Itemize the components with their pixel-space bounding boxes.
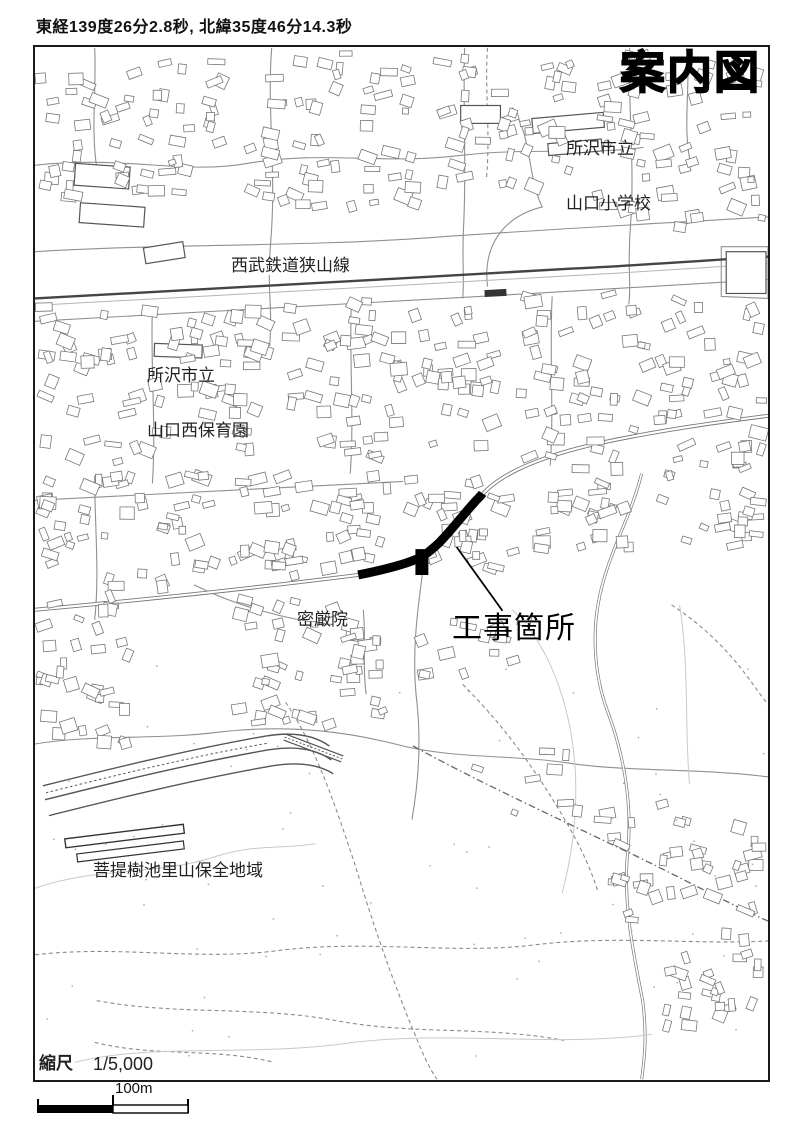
label-conservation-area: 菩提樹池里山保全地域 — [93, 862, 263, 880]
scale-value: 1/5,000 — [93, 1055, 153, 1074]
label-elementary-school-line1: 所沢市立 — [566, 140, 651, 158]
label-construction-site: 工事箇所 — [452, 613, 576, 645]
scale-bar — [33, 1079, 203, 1115]
coordinates-text: 東経139度26分2.8秒, 北緯35度46分14.3秒 — [36, 13, 352, 37]
label-temple: 密厳院 — [297, 611, 348, 629]
terrace-strips — [43, 734, 333, 862]
map-title: 案内図 — [620, 49, 761, 98]
label-elementary-school-line2: 山口小学校 — [566, 195, 651, 213]
railway-line — [35, 257, 768, 306]
scale-label: 縮尺 — [39, 1055, 73, 1073]
label-railway-line: 西武鉄道狭山線 — [228, 257, 353, 275]
map-canvas — [35, 47, 768, 1080]
building-fabric — [35, 49, 768, 1032]
guide-map-page: 東経139度26分2.8秒, 北緯35度46分14.3秒 — [0, 0, 793, 1122]
label-nursery-school-line2: 山口西保育園 — [147, 422, 249, 440]
scale-bar-filled-segment — [38, 1105, 113, 1113]
scale-bar-empty-segment — [113, 1105, 188, 1113]
label-nursery-school-line1: 所沢市立 — [147, 367, 249, 385]
label-nursery-school: 所沢市立 山口西保育園 — [147, 330, 249, 477]
label-elementary-school: 所沢市立 山口小学校 — [566, 103, 651, 250]
south-road — [595, 473, 645, 1079]
map-frame: 案内図 所沢市立 山口小学校 西武鉄道狭山線 所沢市立 山口西保育園 密厳院 工… — [33, 45, 770, 1082]
